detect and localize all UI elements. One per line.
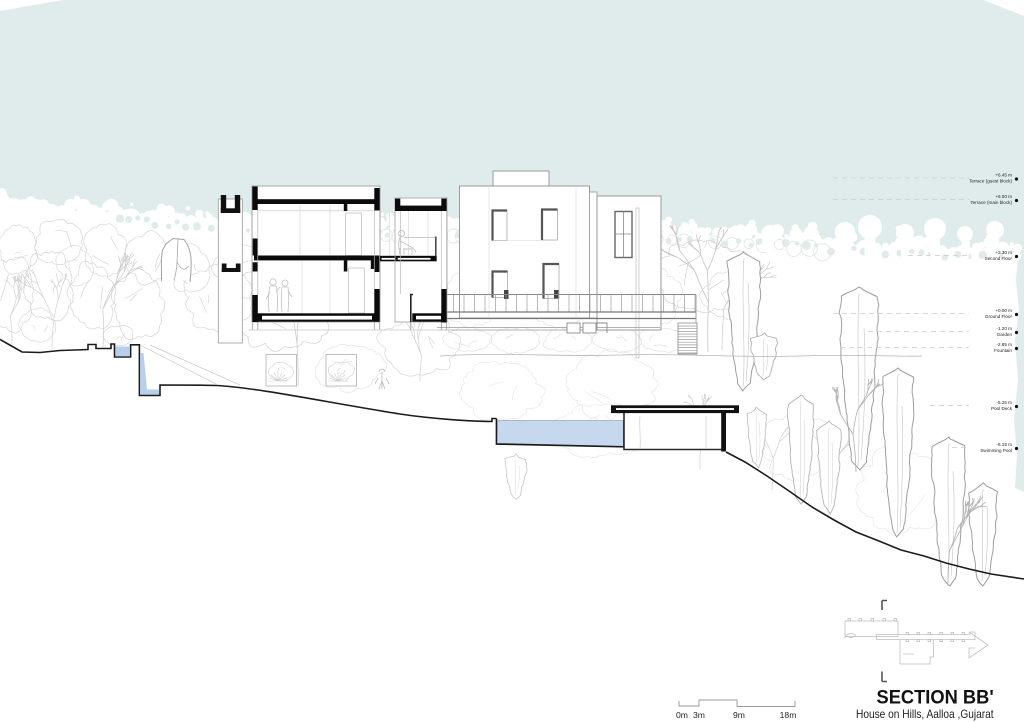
svg-text:Fountain: Fountain bbox=[994, 348, 1012, 353]
svg-text:-6.15 m: -6.15 m bbox=[996, 442, 1012, 447]
svg-text:3m: 3m bbox=[693, 710, 705, 720]
svg-text:+3.30 m: +3.30 m bbox=[995, 250, 1012, 255]
svg-text:Terrace (main block): Terrace (main block) bbox=[970, 200, 1012, 205]
svg-text:-2.85 m: -2.85 m bbox=[996, 342, 1012, 347]
svg-text:-1.20 m: -1.20 m bbox=[996, 326, 1012, 331]
svg-text:+6.00 m: +6.00 m bbox=[995, 194, 1012, 199]
svg-text:Pool Deck: Pool Deck bbox=[991, 406, 1013, 411]
svg-text:+0.00 m: +0.00 m bbox=[995, 308, 1012, 313]
svg-text:0m: 0m bbox=[676, 710, 688, 720]
svg-text:Swimming Pool: Swimming Pool bbox=[980, 448, 1012, 453]
svg-text:SECTION BB': SECTION BB' bbox=[877, 688, 994, 709]
svg-text:9m: 9m bbox=[733, 710, 745, 720]
svg-text:Ground Floor: Ground Floor bbox=[985, 314, 1013, 319]
svg-text:+6.45 m: +6.45 m bbox=[995, 173, 1012, 178]
svg-text:18m: 18m bbox=[780, 710, 797, 720]
svg-text:House on Hills, Aalloa ,Gujara: House on Hills, Aalloa ,Gujarat bbox=[856, 707, 994, 721]
svg-text:Second Floor: Second Floor bbox=[985, 256, 1013, 261]
svg-text:Terrace (guest block): Terrace (guest block) bbox=[969, 179, 1012, 184]
svg-text:Garden: Garden bbox=[997, 332, 1013, 337]
svg-text:-5.25 m: -5.25 m bbox=[996, 400, 1012, 405]
